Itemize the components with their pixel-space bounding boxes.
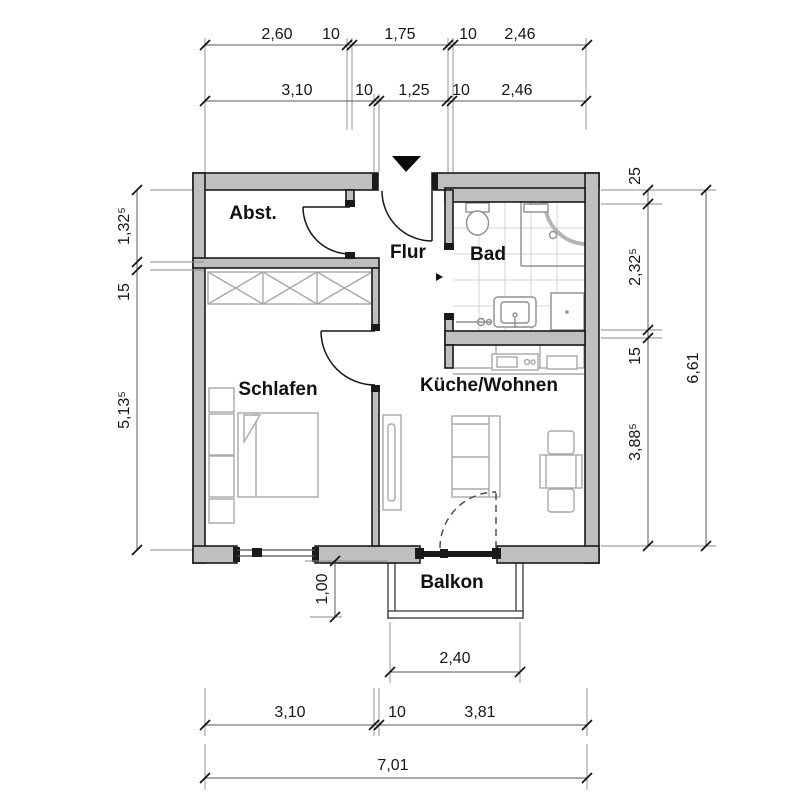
dim-label: 1,25 xyxy=(398,82,429,99)
dining-set xyxy=(540,431,582,512)
toilet xyxy=(466,203,489,235)
dim-label: 10 xyxy=(322,26,340,43)
dim-label: 6,61 xyxy=(685,352,702,383)
bath-top-wall xyxy=(445,188,585,202)
storage-bottom-wall xyxy=(193,258,379,268)
room-label-living: Küche/Wohnen xyxy=(420,375,558,396)
kitchen-wall-stub xyxy=(445,345,453,368)
kitchen-unit xyxy=(453,345,584,374)
dim-label: 2,60 xyxy=(261,26,292,43)
bedroom-wall-upper xyxy=(372,268,379,325)
dim-chain-balcony-width: 2,40 xyxy=(385,622,525,683)
door-posts xyxy=(233,173,454,562)
top-wall-left xyxy=(193,173,378,190)
cooktop xyxy=(547,356,577,369)
dim-chain-bottom-1: 3,10 10 3,81 xyxy=(200,688,592,736)
dim-label: 10 xyxy=(388,704,406,721)
bedroom-window xyxy=(237,548,315,557)
dim-label: 2,40 xyxy=(439,650,470,667)
left-wall xyxy=(193,173,205,563)
dim-chain-bottom-total: 7,01 xyxy=(200,744,592,790)
entrance-arrow-icon xyxy=(392,156,421,172)
room-label-storage: Abst. xyxy=(229,203,277,224)
dim-label: 3,10 xyxy=(281,82,312,99)
balcony-wall-bottom xyxy=(388,611,523,618)
sideboard xyxy=(383,415,401,510)
chair-bottom xyxy=(548,489,574,512)
bath-left-wall-upper xyxy=(445,190,453,244)
dim-label: 2,46 xyxy=(501,82,532,99)
bed xyxy=(209,388,318,523)
dim-label: 15 xyxy=(116,283,133,301)
dim-label: 3,10 xyxy=(274,704,305,721)
dim-label: 1,75 xyxy=(384,26,415,43)
dim-chain-left: 1,32⁵ 15 5,13⁵ xyxy=(116,185,204,555)
balcony-wall-left xyxy=(388,563,395,618)
dim-label: 7,01 xyxy=(377,757,408,774)
shower-head xyxy=(524,204,548,212)
dim-label: 10 xyxy=(452,82,470,99)
bottom-wall-middle xyxy=(315,546,420,563)
dim-label: 10 xyxy=(355,82,373,99)
dim-label: 25 xyxy=(627,167,644,185)
nightstand-top xyxy=(209,388,234,412)
dim-label: 5,13⁵ xyxy=(116,391,133,429)
dim-label: 1,00 xyxy=(314,573,331,604)
storage-door xyxy=(303,207,350,254)
dim-chain-balcony-depth: 1,00 xyxy=(305,556,388,622)
dim-label: 3,81 xyxy=(464,704,495,721)
wardrobe xyxy=(208,272,372,304)
dim-chain-right-outer: 6,61 xyxy=(685,185,711,551)
room-label-bedroom: Schlafen xyxy=(238,379,317,400)
room-label-balcony: Balkon xyxy=(420,572,483,593)
bottom-wall-left xyxy=(193,546,237,563)
dim-chain-top-1: 2,60 10 1,75 10 2,46 xyxy=(200,26,592,172)
dim-label: 1,32⁵ xyxy=(116,207,133,245)
bedroom-wall-lower xyxy=(372,391,379,546)
floor-plan-drawing: Abst. Flur Bad Schlafen Küche/Wohnen Bal… xyxy=(0,0,800,800)
bath-door-marker xyxy=(436,273,443,281)
dim-label: 2,32⁵ xyxy=(627,248,644,286)
balcony-door-swing xyxy=(440,492,496,548)
bedroom-door xyxy=(321,331,375,385)
right-wall xyxy=(585,173,599,563)
washbasin xyxy=(494,297,536,328)
bath-bottom-wall xyxy=(445,331,585,345)
dim-label: 10 xyxy=(459,26,477,43)
balcony-door xyxy=(415,548,501,559)
sofa xyxy=(452,416,500,497)
bottom-wall-right xyxy=(497,546,599,563)
entrance-door xyxy=(382,191,432,241)
nightstand-bottom xyxy=(209,499,234,523)
dim-label: 15 xyxy=(627,347,644,365)
room-label-hall: Flur xyxy=(390,242,426,263)
dim-label: 3,88⁵ xyxy=(627,423,644,461)
balcony-wall-right xyxy=(516,563,523,618)
chair-top xyxy=(548,431,574,454)
dim-label: 2,46 xyxy=(504,26,535,43)
room-label-bath: Bad xyxy=(470,244,506,265)
washing-machine xyxy=(551,293,584,330)
floor-plan-page: Abst. Flur Bad Schlafen Küche/Wohnen Bal… xyxy=(0,0,800,800)
